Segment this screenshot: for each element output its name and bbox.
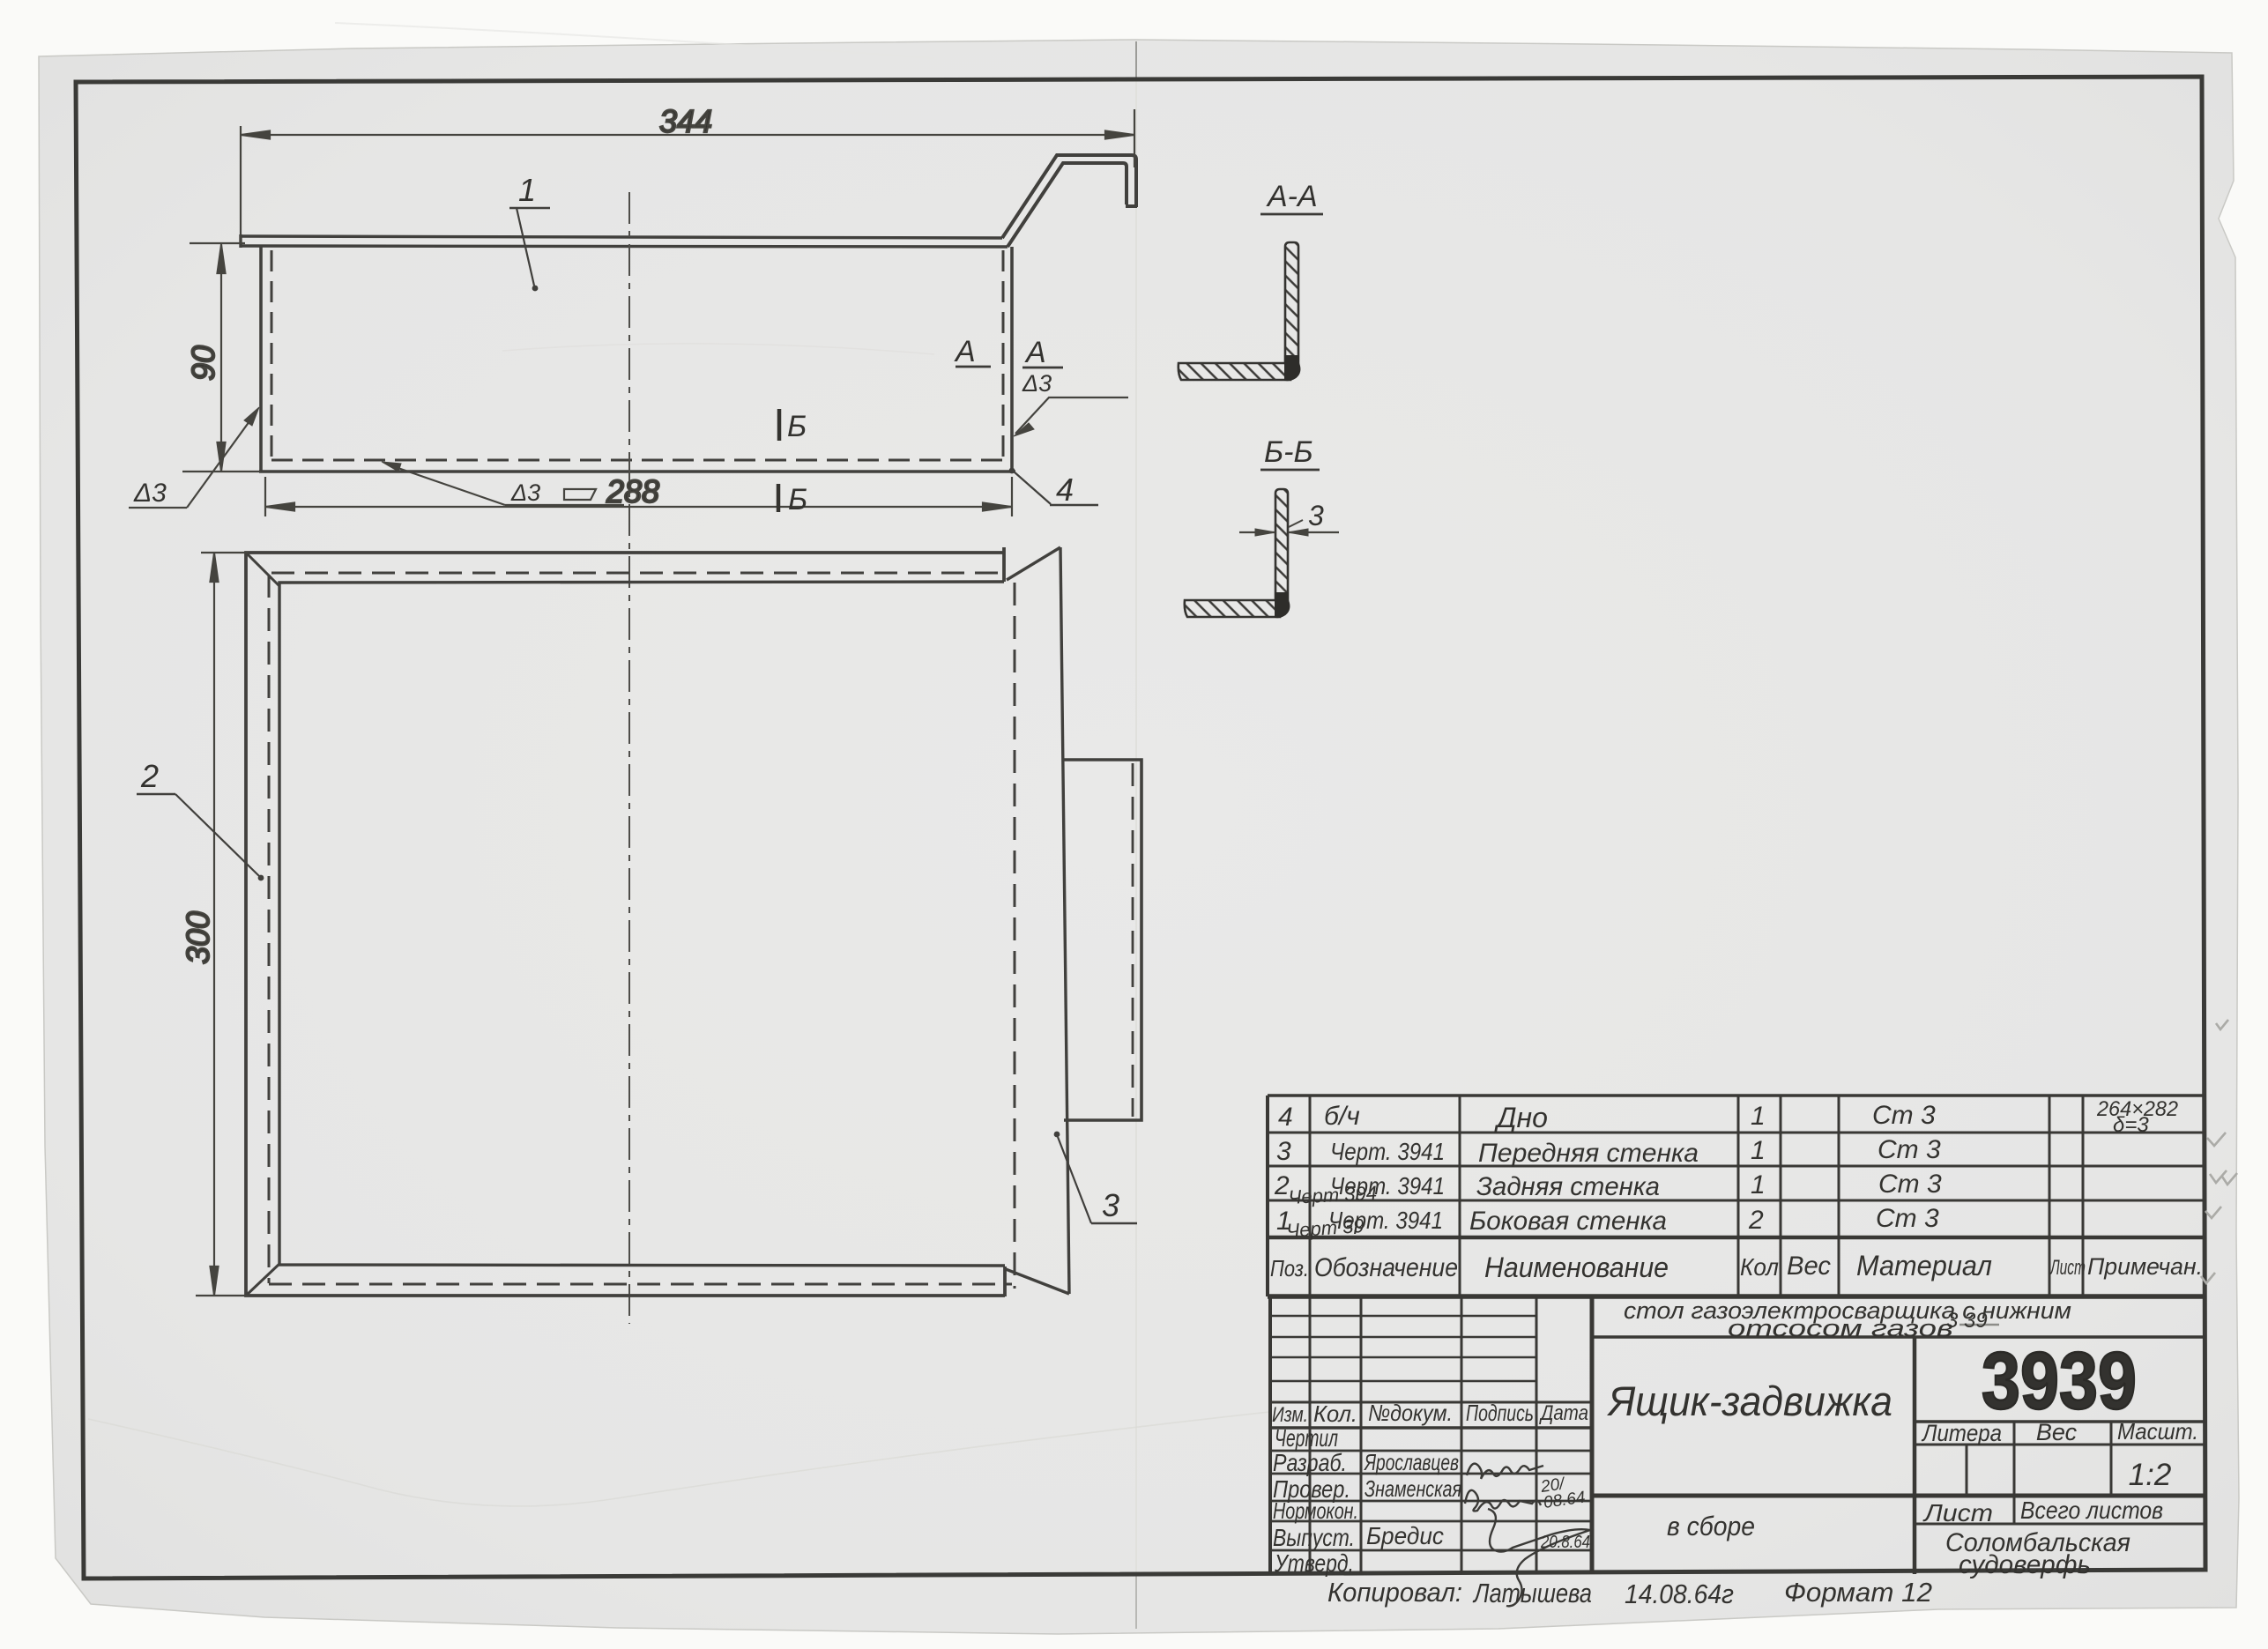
svg-text:1: 1: [1751, 1136, 1766, 1165]
svg-text:Δ3: Δ3: [510, 479, 540, 506]
svg-text:14.08.64г: 14.08.64г: [1625, 1578, 1734, 1609]
svg-text:№докум.: №докум.: [1368, 1400, 1453, 1426]
svg-text:Ящик-задвижка: Ящик-задвижка: [1606, 1378, 1892, 1424]
svg-text:Дата: Дата: [1538, 1401, 1588, 1425]
svg-text:Б-Б: Б-Б: [1264, 435, 1313, 469]
svg-text:4: 4: [1278, 1103, 1293, 1132]
svg-text:1: 1: [1751, 1170, 1766, 1200]
svg-text:Наименование: Наименование: [1484, 1252, 1669, 1283]
svg-text:А-А: А-А: [1266, 180, 1318, 213]
svg-text:3 39: 3 39: [1946, 1309, 1988, 1333]
svg-text:Кол: Кол: [1740, 1253, 1779, 1281]
svg-text:Масшт.: Масшт.: [2117, 1418, 2198, 1445]
svg-text:288: 288: [606, 473, 659, 509]
svg-text:А: А: [954, 335, 976, 368]
svg-text:300: 300: [180, 911, 216, 964]
svg-text:1:2: 1:2: [2129, 1458, 2172, 1492]
svg-text:90: 90: [185, 345, 221, 381]
svg-text:Δ3: Δ3: [1022, 370, 1052, 397]
svg-text:Подпись: Подпись: [1466, 1400, 1534, 1426]
svg-text:б/ч: б/ч: [1324, 1102, 1360, 1131]
svg-text:Чертил: Чертил: [1275, 1424, 1338, 1452]
svg-text:Примечан.: Примечан.: [2087, 1253, 2203, 1280]
svg-text:Материал: Материал: [1856, 1250, 1992, 1281]
svg-text:отсосом газов: отсосом газов: [1728, 1315, 1953, 1341]
svg-text:Вес: Вес: [1787, 1252, 1831, 1281]
svg-text:2: 2: [140, 758, 159, 794]
svg-text:2: 2: [1748, 1206, 1764, 1235]
svg-text:Передняя стенка: Передняя стенка: [1478, 1139, 1699, 1168]
svg-text:20.8.64: 20.8.64: [1540, 1533, 1590, 1552]
svg-text:Ярославцев: Ярославцев: [1364, 1449, 1459, 1475]
svg-text:Б: Б: [788, 483, 807, 516]
svg-text:судоверфь: судоверфь: [1959, 1550, 2091, 1579]
svg-text:3939: 3939: [1982, 1336, 2137, 1426]
svg-text:Утверд.: Утверд.: [1274, 1549, 1354, 1577]
svg-text:Ст 3: Ст 3: [1878, 1170, 1942, 1199]
svg-text:4: 4: [1056, 472, 1074, 508]
svg-text:Боковая стенка: Боковая стенка: [1469, 1207, 1667, 1236]
svg-text:Ст 3: Ст 3: [1878, 1135, 1941, 1164]
svg-text:Копировал:: Копировал:: [1327, 1577, 1462, 1608]
svg-text:Лист: Лист: [1922, 1499, 1993, 1526]
svg-text:Поз.: Поз.: [1270, 1255, 1309, 1281]
svg-text:Латышева: Латышева: [1472, 1578, 1592, 1608]
svg-text:3: 3: [1308, 500, 1324, 531]
svg-text:Черт. 3941: Черт. 3941: [1330, 1138, 1445, 1165]
svg-text:Лист: Лист: [2049, 1256, 2086, 1280]
svg-text:Литера: Литера: [1921, 1420, 2002, 1446]
svg-text:Дно: Дно: [1494, 1102, 1548, 1133]
svg-text:Обозначение: Обозначение: [1314, 1253, 1458, 1282]
svg-text:Ст 3: Ст 3: [1872, 1101, 1936, 1130]
svg-text:344: 344: [659, 103, 712, 139]
svg-text:3: 3: [1276, 1137, 1291, 1166]
svg-text:Изм.: Изм.: [1272, 1403, 1308, 1427]
svg-text:Кол.: Кол.: [1313, 1400, 1357, 1427]
svg-text:Вес: Вес: [2036, 1419, 2078, 1445]
svg-text:Всего листов: Всего листов: [2020, 1497, 2163, 1524]
svg-text:А: А: [1024, 336, 1046, 369]
svg-text:Выпуст.: Выпуст.: [1273, 1524, 1355, 1551]
svg-text:Ст 3: Ст 3: [1876, 1204, 1939, 1233]
svg-text:1: 1: [1751, 1102, 1766, 1131]
svg-text:Нормокон.: Нормокон.: [1273, 1497, 1358, 1524]
svg-text:Δ3: Δ3: [133, 479, 167, 508]
svg-text:3: 3: [1102, 1187, 1119, 1223]
svg-text:Б: Б: [787, 410, 807, 443]
svg-text:1: 1: [518, 172, 536, 208]
svg-text:в сборе: в сборе: [1667, 1511, 1755, 1541]
svg-text:Черт 394: Черт 394: [1288, 1182, 1378, 1208]
svg-text:Бредис: Бредис: [1366, 1522, 1444, 1549]
svg-text:Разраб.: Разраб.: [1273, 1449, 1347, 1476]
svg-text:Формат 12: Формат 12: [1784, 1577, 1932, 1608]
svg-text:δ=3: δ=3: [2113, 1113, 2149, 1137]
svg-text:Знаменская: Знаменская: [1365, 1475, 1461, 1502]
svg-text:Задняя стенка: Задняя стенка: [1476, 1172, 1660, 1201]
